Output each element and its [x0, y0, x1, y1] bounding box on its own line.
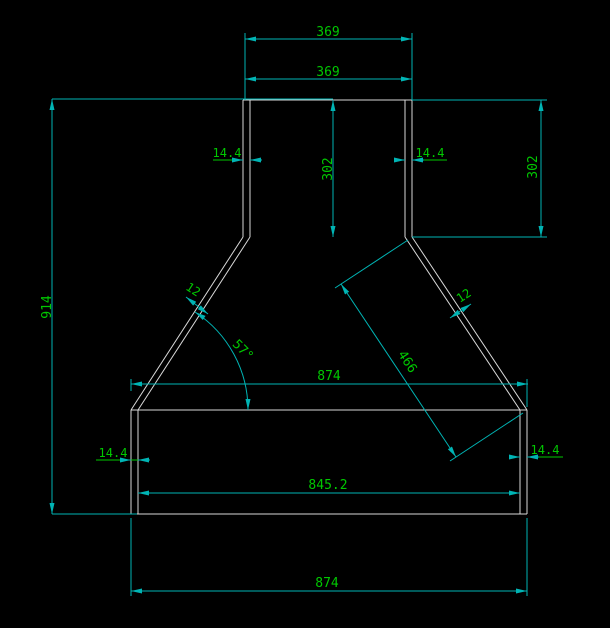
dimension-body-width-top[interactable]: 874 — [131, 369, 528, 407]
dimension-line — [450, 304, 471, 318]
dimension-neck-wall-left[interactable]: 14.4 — [213, 146, 262, 160]
dim-label-body-wall-right: 14.4 — [531, 443, 560, 457]
dim-label-neck-wall-right: 14.4 — [416, 146, 445, 160]
dim-label-neck-wall-left: 14.4 — [213, 146, 242, 160]
dimension-neck-width-lower[interactable]: 369 — [245, 65, 412, 80]
dimension-line — [341, 284, 456, 457]
dim-label-body-width-inner: 845.2 — [308, 478, 347, 493]
dimension-slope-angle[interactable]: 57° — [195, 312, 256, 410]
dimension-body-wall-left[interactable]: 14.4 — [96, 446, 150, 460]
dim-label-slope-length: 466 — [394, 348, 419, 376]
dim-label-slope-angle: 57° — [229, 337, 256, 364]
dimension-neck-height-right[interactable]: 302 — [412, 100, 547, 237]
dim-label-neck-width-upper: 369 — [316, 25, 339, 40]
dimension-body-width-bottom[interactable]: 874 — [131, 518, 527, 596]
dimension-neck-wall-right[interactable]: 14.4 — [394, 146, 447, 160]
dimension-line — [186, 297, 208, 314]
dimension-body-width-inner[interactable]: 845.2 — [138, 478, 520, 493]
dimension-neck-height-center[interactable]: 302 — [321, 100, 336, 237]
dim-label-body-width-top: 874 — [317, 369, 341, 384]
dim-label-neck-width-lower: 369 — [316, 65, 339, 80]
dim-label-body-wall-left: 14.4 — [99, 446, 128, 460]
dim-label-neck-height-right: 302 — [526, 155, 541, 178]
drawing-canvas[interactable]: 369 369 914 302 302 14.4 14.4 12 — [0, 0, 610, 628]
dimension-slope-wall-right[interactable]: 12 — [450, 286, 474, 318]
dimension-neck-width-upper[interactable]: 369 — [245, 25, 412, 100]
dimension-body-wall-right[interactable]: 14.4 — [509, 443, 563, 457]
dim-label-slope-wall-right: 12 — [454, 286, 474, 306]
dim-label-body-width-bottom: 874 — [315, 576, 339, 591]
angle-arc — [195, 312, 248, 410]
dim-label-slope-wall-left: 12 — [183, 280, 203, 300]
dimension-overall-height[interactable]: 914 — [40, 99, 333, 514]
dim-label-overall-height: 914 — [40, 295, 55, 319]
dim-label-neck-height-center: 302 — [321, 157, 336, 180]
extension-lines — [52, 99, 333, 514]
